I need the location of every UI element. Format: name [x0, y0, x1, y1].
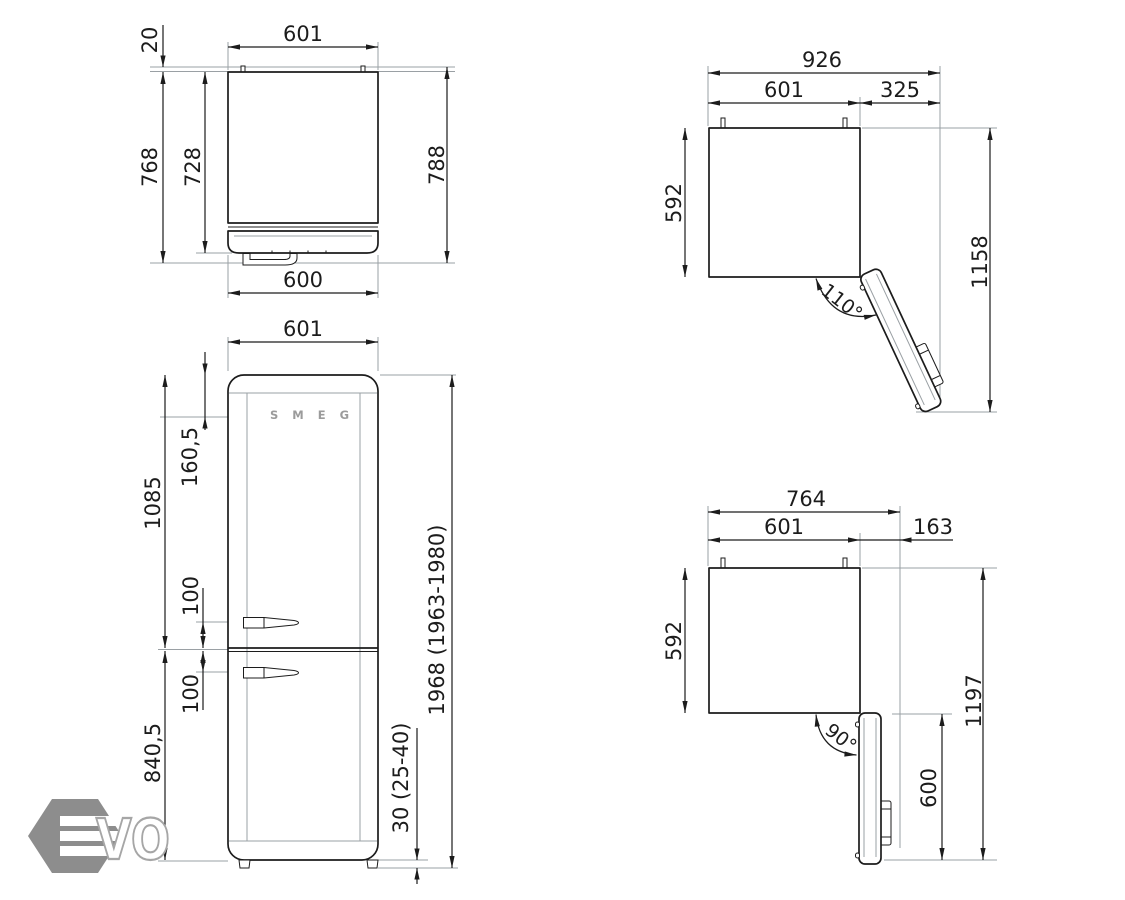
rear-spacer [721, 558, 725, 568]
dim-label-door-length-90: 600 [917, 768, 941, 808]
dim-label-overall-width-110: 926 [802, 48, 842, 72]
dim-label-width-110: 601 [764, 78, 804, 102]
dim-label-overall-width-90: 764 [786, 487, 826, 511]
dim-label-feet-height: 30 (25-40) [389, 723, 413, 834]
dim-label-logo-offset: 160,5 [178, 427, 202, 487]
brand-logo-text: SMEG [270, 408, 363, 422]
dim-label-wall-gap: 20 [138, 27, 162, 54]
dim-label-door-width: 600 [283, 268, 323, 292]
dim-label-overall-height: 1968 (1963-1980) [425, 525, 449, 716]
dim-label-depth-110: 592 [662, 183, 686, 223]
dim-label-overall-depth-90: 1197 [962, 674, 986, 727]
foot-left [239, 860, 250, 868]
dim-label-depth-body: 768 [138, 147, 162, 187]
dim-label-door-projection-90: 163 [913, 515, 953, 539]
angle-label-110: 110° [817, 280, 867, 326]
dim-label-width-90: 601 [764, 515, 804, 539]
dim-label-handle-upper: 100 [179, 576, 203, 616]
dim-label-handle-lower: 100 [179, 674, 203, 714]
foot-right [367, 860, 378, 868]
refrigerator-dimension-drawing: 601 20 768 728 788 600 SMEG [0, 0, 1125, 900]
dim-label-depth-overall: 788 [425, 145, 449, 185]
dim-label-overall-depth-110: 1158 [968, 235, 992, 288]
view-open-110: 926 601 325 592 1158 110° [662, 48, 997, 415]
rear-spacer [721, 118, 725, 128]
angle-label-90: 90° [821, 719, 861, 757]
watermark-letters: VO [96, 808, 170, 873]
dim-label-width-front: 601 [283, 317, 323, 341]
view-top-closed: 601 20 768 728 788 600 [138, 22, 455, 298]
dim-label-door-projection-110: 325 [880, 78, 920, 102]
dim-label-depth-no-door: 728 [181, 147, 205, 187]
dim-label-upper-section: 1085 [141, 476, 165, 529]
dim-label-lower-section: 840,5 [141, 723, 165, 783]
evo-logo-watermark: VO [28, 799, 170, 873]
view-front: SMEG 601 160,5 1085 100 100 840,5 1968 (… [141, 317, 458, 884]
cabinet-outline-90 [709, 568, 860, 713]
cabinet-top-outline [228, 72, 378, 223]
dim-label-depth-90: 592 [662, 621, 686, 661]
door-handle-top [243, 254, 297, 266]
technical-drawing-page: 601 20 768 728 788 600 SMEG [0, 0, 1125, 900]
dim-label-width-top: 601 [283, 22, 323, 46]
door-top-outline [228, 231, 378, 253]
cabinet-outline-110 [709, 128, 860, 277]
rear-spacer [843, 558, 847, 568]
rear-spacer [843, 118, 847, 128]
view-open-90: 764 601 163 592 1197 600 90° [662, 487, 997, 864]
